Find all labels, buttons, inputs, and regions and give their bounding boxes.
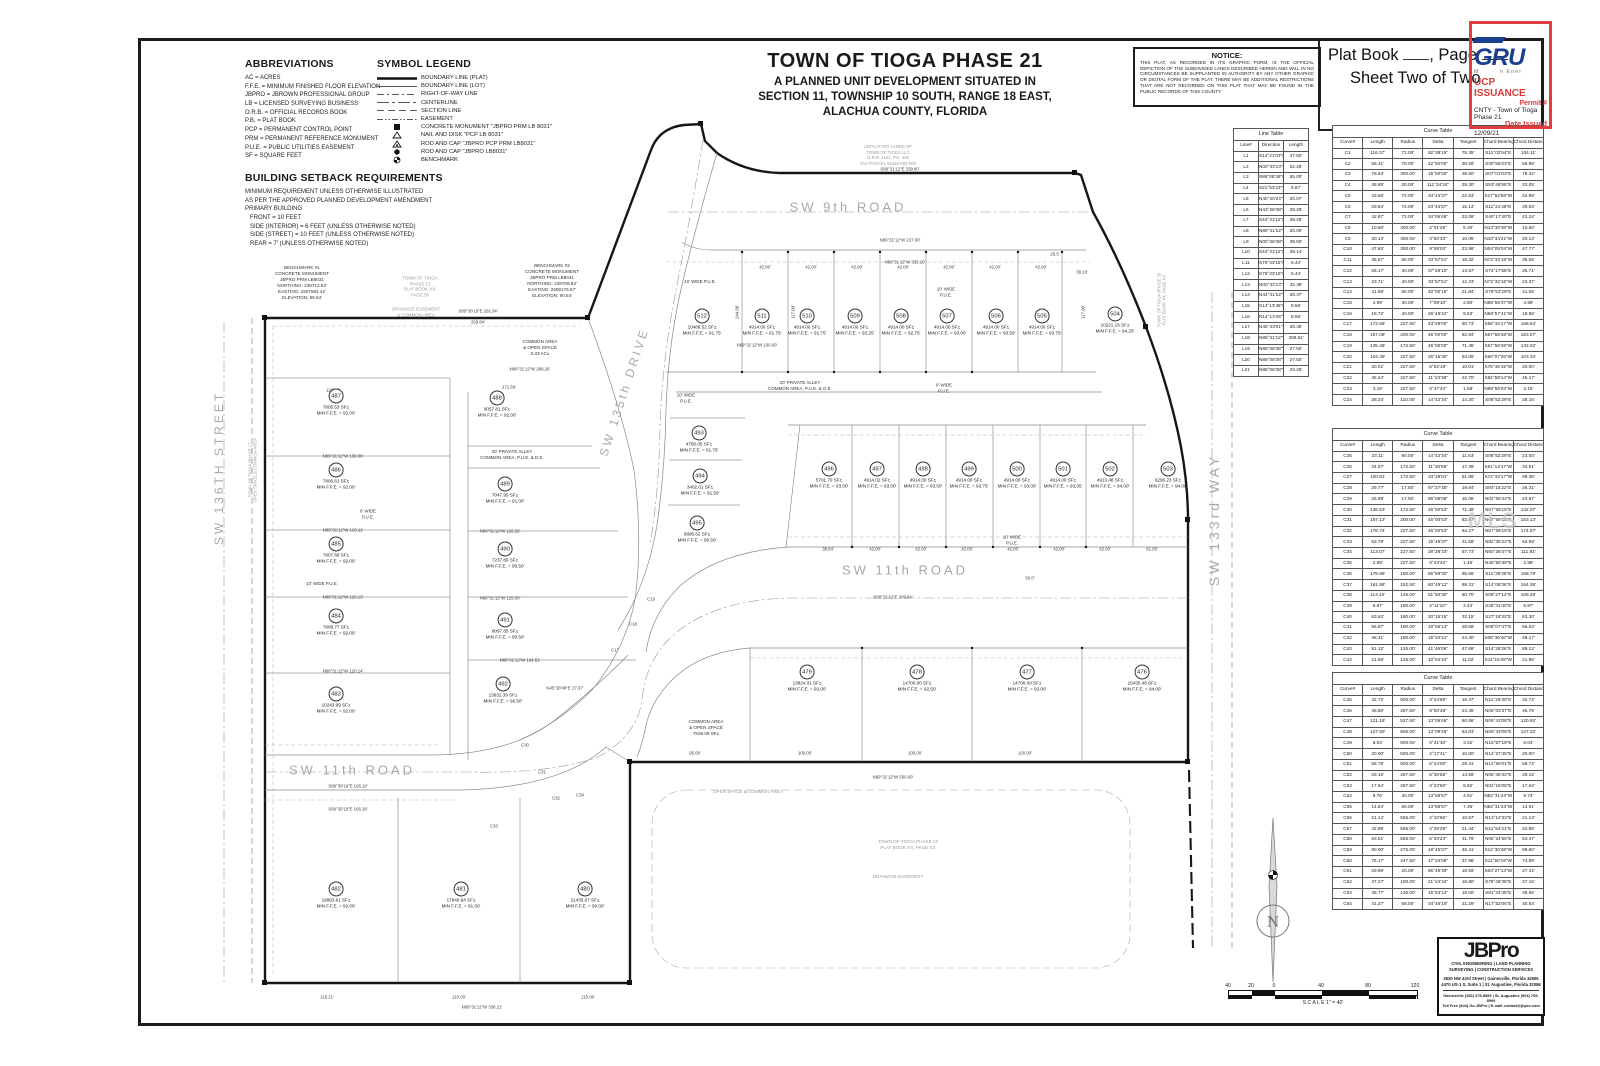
table-row: L5N40°20'24"W20.07'	[1234, 194, 1309, 205]
table-row: C1047.82'300.00'9°08'03"23.98'N04°05'04"…	[1333, 245, 1544, 256]
table-row: C1323.71'40.00'33°57'51"12.23'N72°32'16"…	[1333, 277, 1544, 288]
table-row: C233.16'227.50'0°47'43"1.58'N89°55'04"W3…	[1333, 384, 1544, 395]
lot-label-488: 4889057.81 SF±MIN F.F.E. = 92.00'	[478, 390, 517, 417]
table-row: C27100.81'172.50'33°29'01"51.89'S72°44'1…	[1333, 473, 1544, 484]
lot-area: 7047.95 SF±	[486, 492, 525, 498]
dimension-label: 42.00'	[943, 265, 955, 270]
road-label: SW 9th ROAD	[790, 200, 907, 215]
road-label: SW 133rd WAY	[1206, 454, 1222, 586]
plat-annotation: 10' WIDEP.U.E.	[677, 392, 695, 403]
lot-label-503: 5036296.23 SF±MIN F.F.E. = 94.00'	[1149, 461, 1188, 488]
stamp-permit-label: Permit #	[1474, 100, 1547, 107]
dimension-label: C18	[629, 622, 637, 627]
lot-number: 484	[328, 608, 343, 623]
plat-annotation: TOWN OF TIOGAPHASE 17PLAT BOOK XX,PAGE 5…	[402, 276, 437, 299]
lot-number: 502	[1102, 461, 1117, 476]
table-row: C36175.88'180.00'55°59'30"95.56'S11°39'3…	[1333, 569, 1544, 580]
lot-area: 8097.85 SF±	[486, 628, 525, 634]
stamp-permit-value: CNTY - Town of Tioga	[1474, 107, 1547, 114]
lot-area: 10486.52 SF±	[683, 324, 722, 330]
dimension-label: C33	[490, 824, 498, 829]
table-row: L11S79°33'15"E5.44'	[1234, 258, 1309, 269]
dimension-label: 171.69'	[502, 385, 516, 390]
lot-label-509: 5094914.00 SF±MIN F.F.E. = 92.25'	[836, 308, 875, 335]
lot-min-ffe: MIN F.F.E. = 92.00'	[317, 558, 356, 564]
lot-number: 483	[328, 686, 343, 701]
lot-area: 14700.00 SF±	[898, 680, 937, 686]
dimension-label: N89°31'12"W 289.26'	[510, 367, 551, 372]
dimension-label: S89°30'19"E 292.34'	[458, 309, 497, 314]
lot-number: 507	[939, 308, 954, 323]
gru-logo-bar-icon	[1472, 37, 1505, 43]
surveyor-firm-box: JBPro CIVIL ENGINEERING | LAND PLANNING …	[1437, 937, 1545, 1016]
dimension-label: 42.00'	[869, 547, 881, 552]
lot-label-506: 5064914.00 SF±MIN F.F.E. = 93.50'	[977, 308, 1016, 335]
road-label: SW 136TH STREET	[212, 391, 226, 545]
table-row: C37161.88'152.50'60°49'12"89.31'S14°08'3…	[1333, 580, 1544, 591]
table-header-row: Line#DirectionLength	[1234, 140, 1309, 151]
lot-label-485: 4857807.69 SF±MIN F.F.E. = 92.00'	[317, 536, 356, 563]
table-row: C742.87'72.00'34°06'48"22.09'S40°17'40"E…	[1333, 212, 1544, 223]
table-row: L19N88°08'38"W27.50'	[1234, 344, 1309, 355]
plat-annotation: TOWN OF TIOGA PHASE 22PLAT BOOK XX, PAGE…	[878, 839, 938, 851]
lot-number: 505	[1034, 308, 1049, 323]
lot-number: 480	[577, 881, 592, 896]
table-row: L2N00°33'13"E22.25'	[1234, 162, 1309, 173]
scale-bar-ticks: 402004080120	[1228, 983, 1418, 990]
lot-min-ffe: MIN F.F.E. = 91.50'	[681, 490, 720, 496]
plat-annotation: 10' WIDEP.U.E.	[937, 286, 955, 297]
lot-number: 482	[328, 881, 343, 896]
dimension-label: 42.00'	[1099, 547, 1111, 552]
table-row: C3362.78'227.50'15°48'37"31.59'N82°35'22…	[1333, 537, 1544, 548]
scale-tick: 120	[1411, 983, 1420, 989]
plat-annotation: 6' WIDEP.U.E.	[936, 382, 952, 393]
scale-tick: 20	[1248, 983, 1254, 989]
lot-area: 4914.00 SF±	[836, 324, 875, 330]
lot-min-ffe: MIN F.F.E. = 92.50'	[898, 686, 937, 692]
dimension-label: 100.00'	[908, 751, 922, 756]
lot-label-501: 5014914.00 SF±MIN F.F.E. = 93.35'	[1044, 461, 1083, 488]
dimension-label: 50.0'	[1025, 576, 1034, 581]
dimension-label: 42.00'	[1053, 547, 1065, 552]
lot-area: 7806.61 SF±	[317, 478, 356, 484]
lot-number: 500	[1009, 461, 1024, 476]
lot-area: 4914.00 SF±	[977, 324, 1016, 330]
plat-annotation: COMMON AREA& OPEN SPACE7539.09 SF±	[689, 719, 724, 737]
lot-area: 15435.48 SF±	[1123, 680, 1162, 686]
dimension-label: N89°31'12"W 227.00'	[880, 238, 921, 243]
dimension-label: 29.5'	[1050, 252, 1059, 257]
lot-min-ffe: MIN F.F.E. = 92.00'	[317, 630, 356, 636]
lot-min-ffe: MIN F.F.E. = 93.75'	[950, 483, 989, 489]
lot-number: 512	[694, 308, 709, 323]
firm-divider	[1443, 990, 1539, 991]
lot-area: 4914.00 SF±	[950, 477, 989, 483]
lot-label-495: 4956895.62 SF±MIN F.F.E. = 90.50'	[678, 515, 717, 542]
dimension-label: N89°31'12"W 338.21'	[462, 1005, 503, 1010]
plat-annotation: COMMON AREA& OPEN SPACE0.33 AC±	[523, 339, 558, 357]
scale-label: S C A L E 1" = 40'	[1228, 1000, 1418, 1006]
table-row: C6075.17'247.50'17°24'09"37.88'S11°50'19…	[1333, 856, 1544, 867]
table-row: C1226.17'40.00'37°29'10"13.57'S74°17'55"…	[1333, 266, 1544, 277]
lot-area: 9057.81 SF±	[478, 406, 517, 412]
lot-area: 10221.16 SF±	[1096, 322, 1135, 328]
table-row: C4156.87'180.00'18°06'13"28.68'S08°07'47…	[1333, 623, 1544, 634]
lot-area: 4914.00 SF±	[928, 324, 967, 330]
lot-min-ffe: MIN F.F.E. = 93.75'	[1023, 330, 1062, 336]
table-row: C4248.31'180.00'15°22'41"24.30'S08°36'40…	[1333, 633, 1544, 644]
table-row: L10S44°31'12"E28.14'	[1234, 248, 1309, 259]
table-row: C258.31'78.00'42°50'00"30.59'S30°56'03"E…	[1333, 159, 1544, 170]
lot-number: 499	[961, 461, 976, 476]
table-row: C2523.11'90.00'14°42'34"11.63'S08°52'29"…	[1333, 451, 1544, 462]
lot-min-ffe: MIN F.F.E. = 93.35'	[1044, 483, 1083, 489]
lot-number: 479	[799, 664, 814, 679]
dimension-label: 269.84'	[471, 320, 485, 325]
table-row: C2634.67'172.50'11°30'59"17.39'S51°14'17…	[1333, 462, 1544, 473]
table-row: C154.99'40.00'7°09'10"2.50'N85°56'37"W4.…	[1333, 298, 1544, 309]
dimension-label: C31	[538, 770, 546, 775]
table-row: C5621.14'555.00'2°10'55"10.57'N13°12'33"…	[1333, 813, 1544, 824]
lot-number: 492	[495, 676, 510, 691]
dimension-label: N89°31'12"W 126.52'	[480, 529, 521, 534]
lot-label-499: 4994914.00 SF±MIN F.F.E. = 93.75'	[950, 461, 989, 488]
lot-label-512: 51210486.52 SF±MIN F.F.E. = 91.75'	[683, 308, 722, 335]
lot-label-486: 4867806.61 SF±MIN F.F.E. = 92.00'	[317, 462, 356, 489]
dimension-label: 118.21'	[320, 995, 334, 1000]
lot-label-504: 50410221.16 SF±MIN F.F.E. = 94.25'	[1096, 306, 1135, 333]
lot-number: 496	[821, 461, 836, 476]
table-row: C5317.64'297.50'3°23'50"8.82'N02°15'08"E…	[1333, 781, 1544, 792]
table-row: L21N88°08'38"W33.25'	[1234, 365, 1309, 376]
curve-table-3: Curve TableCurve#LengthRadiusDeltaTangen…	[1332, 672, 1544, 910]
scale-bar-segment	[1369, 996, 1416, 1000]
dimension-label: N89°31'12"W 125.00'	[480, 596, 521, 601]
dimension-label: 110.00'	[581, 995, 595, 1000]
lot-number: 486	[328, 462, 343, 477]
scale-bar-segment	[1322, 991, 1369, 995]
lot-area: 4914.00 SF±	[788, 324, 827, 330]
lot-label-511: 5114914.00 SF±MIN F.F.E. = 91.75'	[743, 308, 782, 335]
table-row: C810.60'300.00'2°01'25"5.30'N13°30'30"W1…	[1333, 223, 1544, 234]
plat-annotation: UNPLATTED LANDS OFTOWN OF TIOGA LLCO.R.B…	[860, 144, 916, 166]
lot-area: 7805.53 SF±	[317, 404, 356, 410]
table-row: C5863.51'555.00'6°33'23"31.79'N06°24'56"…	[1333, 834, 1544, 845]
table-row: C4063.62'180.00'20°15'16"32.15'S27°18'32…	[1333, 612, 1544, 623]
lot-min-ffe: MIN F.F.E. = 92.00'	[788, 686, 827, 692]
dimension-label: N89°31'12"W 120.13'	[323, 595, 364, 600]
table-row: L1S14°21'03"E47.50'	[1234, 151, 1309, 162]
scale-bar-segment	[1322, 996, 1369, 1000]
lot-number: 510	[799, 308, 814, 323]
table-row: C4421.98'125.00'10°04'24"11.02'S11°15'48…	[1333, 655, 1544, 666]
lot-label-477: 47714700.00 SF±MIN F.F.E. = 93.00'	[1008, 664, 1047, 691]
lot-area: 18883.81 SF±	[317, 897, 356, 903]
scale-tick: 40	[1225, 983, 1231, 989]
lot-min-ffe: MIN F.F.E. = 92.00'	[317, 903, 356, 909]
dimension-label: 42.00'	[897, 265, 909, 270]
plat-annotation: DRAINAGE EASEMENT	[873, 874, 924, 880]
table-row: C17172.66'227.50'43°29'00"90.73'S68°44'1…	[1333, 320, 1544, 331]
table-row: C920.13'300.00'3°50'33"10.06'N10°34'21"W…	[1333, 234, 1544, 245]
plat-annotation: TOWN OF TIOGA PHASE 20PLAT BOOK XX, PAGE…	[1157, 273, 1168, 328]
lot-area: 4914.00 SF±	[998, 477, 1037, 483]
table-row: C2829.77'17.50'97°27'45"19.84'S84°16'22"…	[1333, 483, 1544, 494]
table-row: L6N43°28'48"E28.28'	[1234, 205, 1309, 216]
table-row: C543.66'72.00'34°44'37"22.53'S17°52'58"W…	[1333, 191, 1544, 202]
table-row: C396.87'180.00'2°11'10"3.43'S28°31'40"E6…	[1333, 601, 1544, 612]
dimension-label: N89°31'12"W 100.00'	[737, 343, 778, 348]
lot-label-508: 5084914.00 SF±MIN F.F.E. = 92.75'	[882, 308, 921, 335]
table-row: C496.04'500.00'0°41'30"3.02'N15°57'18"E6…	[1333, 738, 1544, 749]
plat-annotation: DRAINAGE EASEMENT& COMMON AREA	[392, 306, 440, 317]
lot-label-493: 4934780.05 SF±MIN F.F.E. = 91.75'	[680, 425, 719, 452]
table-title: Curve Table	[1333, 429, 1544, 441]
lot-min-ffe: MIN F.F.E. = 91.75'	[680, 447, 719, 453]
lot-label-489: 4897047.95 SF±MIN F.F.E. = 91.00'	[486, 476, 525, 503]
lot-min-ffe: MIN F.F.E. = 92.25'	[836, 330, 875, 336]
lot-label-502: 5024913.48 SF±MIN F.F.E. = 94.00'	[1091, 461, 1130, 488]
lot-number: 511	[754, 308, 769, 323]
lot-area: 6895.62 SF±	[678, 531, 717, 537]
table-row: L12S79°33'15"E5.44'	[1234, 269, 1309, 280]
lot-label-483: 48310243.99 SF±MIN F.F.E. = 92.00'	[317, 686, 356, 713]
dimension-label: N89°31'12"W 500.00'	[873, 775, 914, 780]
dimension-label: N89°31'12"W 130.09'	[323, 454, 364, 459]
firm-phone-2: Toll Free (844) Go-JBPro | E-mail contac…	[1439, 1003, 1543, 1008]
table-row: C2925.99'17.50'85°06'08"16.06'N02°55'44"…	[1333, 494, 1544, 505]
lot-label-484: 4847808.77 SF±MIN F.F.E. = 92.00'	[317, 608, 356, 635]
scale-bar-row-bottom	[1228, 995, 1418, 1000]
lot-number: 494	[692, 468, 707, 483]
lot-number: 493	[691, 425, 706, 440]
table-row: C4646.80'297.50'9°00'48"23.45'N05°03'37"…	[1333, 706, 1544, 717]
road-label: SW 11th ROAD	[289, 763, 415, 778]
lot-area: 4914.00 SF±	[1023, 324, 1062, 330]
lot-number: 478	[909, 664, 924, 679]
lot-min-ffe: MIN F.F.E. = 91.00'	[442, 903, 481, 909]
lot-min-ffe: MIN F.F.E. = 93.50'	[904, 483, 943, 489]
plat-annotation: BENCHMARK #2CONCRETE MONUMENTJBPRO PRM L…	[525, 263, 579, 299]
lot-label-487: 4877805.53 SF±MIN F.F.E. = 92.00'	[317, 388, 356, 415]
table-row: C5020.00'500.00'2°17'31"10.00'N14°27'45"…	[1333, 749, 1544, 760]
lot-min-ffe: MIN F.F.E. = 91.00'	[486, 498, 525, 504]
lot-min-ffe: MIN F.F.E. = 91.75'	[683, 330, 722, 336]
table-row: C352.89'227.50'0°43'42"1.45'N45°50'39"E2…	[1333, 558, 1544, 569]
lot-area: 4914.00 SF±	[904, 477, 943, 483]
dimension-label: S89°31'12"E 309.84'	[873, 595, 912, 600]
lot-number: 501	[1055, 461, 1070, 476]
scale-bar: 402004080120 S C A L E 1" = 40'	[1228, 983, 1418, 1006]
table-row: C6441.27'68.00'34°46'19"21.29'N17°52'06"…	[1333, 899, 1544, 910]
road-label: SW 135th DRIVE	[597, 326, 652, 458]
scale-bar-segment	[1275, 996, 1322, 1000]
table-row: L3S88°08'38"E55.00'	[1234, 173, 1309, 184]
scale-bar-segment	[1369, 991, 1416, 995]
lot-area: 3402.61 SF±	[681, 484, 720, 490]
dimension-label: 42.00'	[851, 265, 863, 270]
lot-label-510: 5104914.00 SF±MIN F.F.E. = 91.75'	[788, 308, 827, 335]
table-row: C18157.08'200.00'45°00'00"82.84'S67°58'4…	[1333, 330, 1544, 341]
plat-annotation: BENCHMARK #1CONCRETE MONUMENTJBPRO PRM L…	[275, 265, 329, 301]
lot-area: 4913.48 SF±	[1091, 477, 1130, 483]
firm-address-1: 3530 NW 43rd Street | Gainesville, Flori…	[1439, 976, 1543, 982]
dimension-label: 42.00'	[805, 265, 817, 270]
lot-label-497: 4974914.02 SF±MIN F.F.E. = 93.00'	[858, 461, 897, 488]
table-row: C1441.89'60.00'40°00'16"21.84'S79°53'29"…	[1333, 287, 1544, 298]
dimension-label: 38.84'	[822, 547, 834, 552]
firm-services-2: SURVEYING | CONSTRUCTION SERVICES	[1439, 967, 1543, 973]
lot-min-ffe: MIN F.F.E. = 92.00'	[478, 412, 517, 418]
dimension-label: 110.00'	[452, 995, 466, 1000]
lot-area: 21435.07 SF±	[566, 897, 605, 903]
firm-phone-1: Gainesville (352) 375-8999 | St. Augusti…	[1439, 993, 1543, 1004]
table-row: C38113.10'125.00'51°50'30"60.70'S09°27'1…	[1333, 590, 1544, 601]
dimension-label: 100.00'	[1018, 751, 1032, 756]
table-header-row: Curve#LengthRadiusDeltaTangentChord Bear…	[1333, 684, 1544, 695]
table-row: L16N14°13'45"W8.56'	[1234, 312, 1309, 323]
dimension-label: 42.00'	[961, 547, 973, 552]
dimension-label: C32	[552, 796, 560, 801]
table-row: L9N00°28'48"E39.50'	[1234, 237, 1309, 248]
plat-annotation: 10' WIDEP.U.E.	[1003, 534, 1021, 545]
lot-number: 495	[689, 515, 704, 530]
lot-area: 13824.31 SF±	[788, 680, 827, 686]
dimension-label: N89°31'12"W 120.14'	[323, 669, 364, 674]
table-row: L4S21°53'23"W9.67'	[1234, 183, 1309, 194]
plat-annotation: 10' WIDE P.U.E.	[684, 279, 716, 285]
lot-min-ffe: MIN F.F.E. = 92.00'	[317, 410, 356, 416]
table-row: C5229.16'297.50'5°36'58"14.59'N06°45'32"…	[1333, 770, 1544, 781]
lot-label-492: 49213631.39 SF±MIN F.F.E. = 90.50'	[484, 676, 523, 703]
table-row: C1618.72'40.00'26°48'42"9.53'N68°57'41"W…	[1333, 309, 1544, 320]
table-row: C549.76'40.00'13°58'57"4.91'N82°31'43"W9…	[1333, 792, 1544, 803]
table-title: Curve Table	[1333, 673, 1544, 685]
table-header-row: Curve#LengthRadiusDeltaTangentChord Bear…	[1333, 440, 1544, 451]
table-row: C5742.86'555.00'4°25'29"21.44'N11°54'21"…	[1333, 824, 1544, 835]
plat-annotation: 20' PRIVATE ALLEYCOMMON AREA, P.U.E. & D…	[480, 449, 543, 461]
dimension-label: N45°38'48"E 27.97'	[546, 686, 583, 691]
lot-min-ffe: MIN F.F.E. = 93.00'	[858, 483, 897, 489]
lot-label-491: 4918097.85 SF±MIN F.F.E. = 90.50'	[486, 612, 525, 639]
table-row: C2245.24'227.50'11°23'38"22.70'S82°59'14…	[1333, 373, 1544, 384]
scale-bar-segment	[1229, 991, 1252, 995]
lot-min-ffe: MIN F.F.E. = 93.00'	[998, 483, 1037, 489]
scale-bar-segment	[1275, 991, 1322, 995]
lot-number: 477	[1019, 664, 1034, 679]
table-row: C1135.57'60.00'33°57'51"18.32'N72°33'16"…	[1333, 255, 1544, 266]
table-row: C4391.12'125.00'41°46'06"47.68'S14°39'26…	[1333, 644, 1544, 655]
table-row: C6335.77'136.00'15°53'14"18.00'S81°34'35…	[1333, 888, 1544, 899]
table-row: C4532.72'500.00'3°44'58"16.37'N11°26'30"…	[1333, 695, 1544, 706]
lot-number: 491	[497, 612, 512, 627]
dimension-label: 42.00'	[915, 547, 927, 552]
lot-label-507: 5074914.00 SF±MIN F.F.E. = 93.00'	[928, 308, 967, 335]
lot-number: 497	[869, 461, 884, 476]
lot-area: 14700.00 SF±	[1008, 680, 1047, 686]
lot-min-ffe: MIN F.F.E. = 93.50'	[977, 330, 1016, 336]
scale-tick: 0	[1273, 983, 1276, 989]
dimension-label: 42.00'	[989, 265, 1001, 270]
lot-label-476: 47615435.48 SF±MIN F.F.E. = 94.00'	[1123, 664, 1162, 691]
lot-number: 490	[497, 541, 512, 556]
lot-label-494: 4943402.61 SF±MIN F.F.E. = 91.50'	[681, 468, 720, 495]
lot-number: 476	[1134, 664, 1149, 679]
dimension-label: C30	[521, 743, 529, 748]
table-row: C2120.01'227.50'5°02'19"10.01'S75°46'15"…	[1333, 362, 1544, 373]
lot-label-505: 5054914.00 SF±MIN F.F.E. = 93.75'	[1023, 308, 1062, 335]
table-row: C629.84'72.00'23°44'57"15.14'S11°21'49"E…	[1333, 202, 1544, 213]
table-row: L14N44°31'12"W28.37'	[1234, 290, 1309, 301]
lot-min-ffe: MIN F.F.E. = 90.50'	[484, 698, 523, 704]
scale-bar-segment	[1252, 991, 1275, 995]
lot-number: 504	[1107, 306, 1122, 321]
table-row: C19135.48'172.50'45°00'00"71.45'S67°58'4…	[1333, 341, 1544, 352]
lot-area: 5701.70 SF±	[810, 477, 849, 483]
lot-label-482: 48218883.81 SF±MIN F.F.E. = 92.00'	[317, 881, 356, 908]
dimension-label: S89°30'19"E 166.19'	[328, 784, 367, 789]
line-table: Line TableLine#DirectionLengthL1S14°21'0…	[1233, 128, 1309, 377]
table-row: C378.54'300.00'15°00'00"39.50'S07°01'03"…	[1333, 170, 1544, 181]
lot-min-ffe: MIN F.F.E. = 91.75'	[788, 330, 827, 336]
lot-number: 489	[497, 476, 512, 491]
lot-number: 503	[1160, 461, 1175, 476]
lot-min-ffe: MIN F.F.E. = 93.00'	[928, 330, 967, 336]
lot-number: 508	[893, 308, 908, 323]
lot-area: 4914.00 SF±	[743, 324, 782, 330]
table-row: C2428.24'110.00'14°42'34"14.20'S08°52'29…	[1333, 395, 1544, 406]
plat-annotation: OPEN SPACE & COMMON AREA	[713, 789, 783, 795]
lot-min-ffe: MIN F.F.E. = 92.00'	[317, 708, 356, 714]
lot-label-480: 48021435.07 SF±MIN F.F.E. = 90.00'	[566, 881, 605, 908]
plat-annotation: 20' PRIVATE ALLEYCOMMON AREA, P.U.E. & O…	[768, 380, 832, 392]
scale-bar-segment	[1252, 996, 1275, 1000]
dimension-label: C34	[576, 793, 584, 798]
lot-min-ffe: MIN F.F.E. = 90.00'	[566, 903, 605, 909]
dimension-label: 42.00'	[1007, 547, 1019, 552]
gru-approval-stamp: GRU M n Ener UCP ISSUANCE Permit # CNTY …	[1469, 21, 1552, 129]
lot-min-ffe: MIN F.F.E. = 90.50'	[486, 563, 525, 569]
table-row: C48127.50'505.00'13°09'46"64.03'N09°43'0…	[1333, 727, 1544, 738]
lot-min-ffe: MIN F.F.E. = 93.00'	[1008, 686, 1047, 692]
dimension-label: 42.00'	[759, 265, 771, 270]
stamp-date-value: 12/09/21	[1474, 130, 1547, 137]
table-header-row: Curve#LengthRadiusDeltaTangentChord Bear…	[1333, 137, 1544, 148]
table-row: L7S44°31'12"E28.28'	[1234, 215, 1309, 226]
lot-min-ffe: MIN F.F.E. = 93.00'	[810, 483, 849, 489]
road-label: SW 11th ROAD	[842, 563, 968, 578]
table-title: Line Table	[1234, 129, 1309, 141]
lot-min-ffe: MIN F.F.E. = 94.25'	[1096, 328, 1135, 334]
curve-table-1: Curve TableCurve#LengthRadiusDeltaTangen…	[1332, 125, 1544, 406]
table-row: C5514.64'60.00'13°58'57"7.36'N82°31'43"W…	[1333, 802, 1544, 813]
dimension-label: 61.05'	[1146, 547, 1158, 552]
lot-area: 4914.00 SF±	[882, 324, 921, 330]
lot-label-478: 47814700.00 SF±MIN F.F.E. = 92.50'	[898, 664, 937, 691]
plat-annotation: TOWN OF TIOGA PHASE 17OPEN SPACE & COMMO…	[248, 438, 259, 502]
lot-area: 4914.02 SF±	[858, 477, 897, 483]
table-row: L17N45°33'01"E28.35'	[1234, 323, 1309, 334]
dimension-label: N89°31'12"W 120.11'	[323, 528, 363, 533]
scale-tick: 40	[1318, 983, 1324, 989]
lot-min-ffe: MIN F.F.E. = 94.00'	[1091, 483, 1130, 489]
curve-table-2: Curve TableCurve#LengthRadiusDeltaTangen…	[1332, 428, 1544, 666]
lot-number: 506	[988, 308, 1003, 323]
lot-area: 6296.23 SF±	[1149, 477, 1188, 483]
dimension-label: N89°31'12"W 164.51'	[500, 658, 541, 663]
lot-number: 498	[915, 461, 930, 476]
